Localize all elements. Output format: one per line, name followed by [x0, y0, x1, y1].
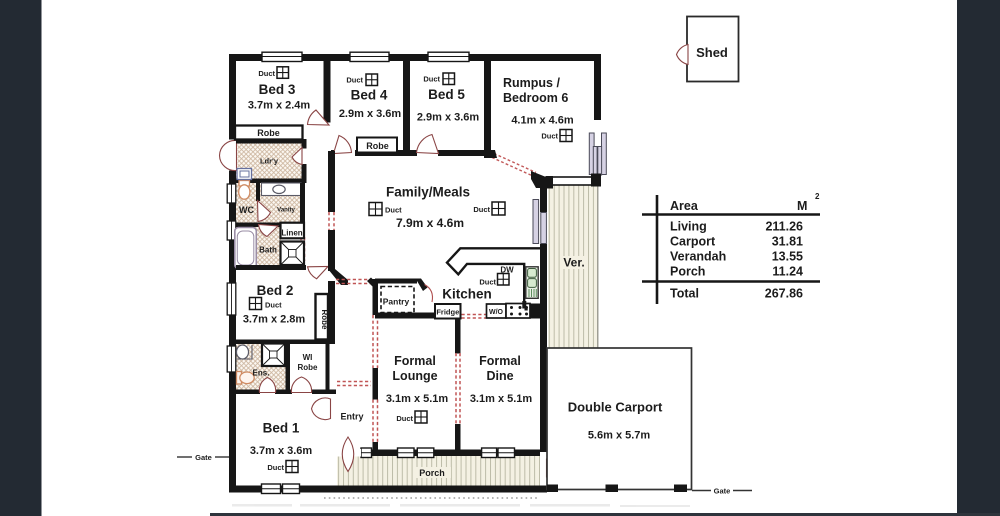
svg-text:Duct: Duct: [541, 132, 558, 141]
svg-text:2.9m x 3.6m: 2.9m x 3.6m: [339, 108, 402, 120]
svg-text:3.7m x 3.6m: 3.7m x 3.6m: [250, 445, 313, 457]
svg-text:2.9m x 3.6m: 2.9m x 3.6m: [417, 112, 480, 124]
svg-text:Shed: Shed: [696, 45, 728, 60]
svg-text:Vanity: Vanity: [277, 208, 295, 214]
svg-text:Gate: Gate: [195, 453, 212, 462]
svg-text:3.1m x 5.1m: 3.1m x 5.1m: [470, 393, 533, 405]
svg-text:Bed 5: Bed 5: [428, 87, 465, 102]
svg-text:Dine: Dine: [486, 369, 513, 383]
svg-text:2: 2: [815, 192, 820, 201]
svg-text:Formal: Formal: [479, 354, 521, 368]
svg-text:Ver.: Ver.: [563, 256, 584, 270]
svg-text:Bedroom 6: Bedroom 6: [503, 91, 568, 105]
svg-text:Area: Area: [670, 199, 699, 213]
svg-text:Duct: Duct: [479, 278, 496, 287]
svg-text:Bed 1: Bed 1: [263, 421, 300, 436]
svg-text:5.6m x 5.7m: 5.6m x 5.7m: [588, 430, 651, 442]
svg-text:Pantry: Pantry: [383, 297, 410, 307]
svg-text:211.26: 211.26: [765, 220, 803, 234]
svg-text:Bed 3: Bed 3: [259, 82, 296, 97]
svg-text:WI: WI: [303, 353, 313, 362]
svg-text:Living: Living: [670, 220, 707, 234]
svg-text:13.55: 13.55: [772, 250, 803, 264]
svg-text:Duct: Duct: [385, 206, 402, 215]
svg-text:3.7m x 2.8m: 3.7m x 2.8m: [243, 314, 306, 326]
svg-text:267.86: 267.86: [765, 287, 803, 301]
svg-text:Verandah: Verandah: [670, 250, 726, 264]
svg-text:Gate: Gate: [714, 487, 731, 496]
svg-text:Bath: Bath: [259, 246, 277, 255]
svg-text:Bed 4: Bed 4: [351, 88, 388, 103]
svg-text:Entry: Entry: [340, 412, 363, 422]
svg-text:Robe: Robe: [298, 363, 319, 372]
svg-text:Linen: Linen: [281, 229, 302, 238]
svg-text:Robe: Robe: [257, 128, 280, 138]
svg-text:7.9m x 4.6m: 7.9m x 4.6m: [396, 216, 464, 230]
svg-text:Robe: Robe: [366, 141, 389, 151]
svg-text:Fridge: Fridge: [436, 308, 459, 317]
svg-text:Duct: Duct: [423, 75, 440, 84]
svg-text:WC: WC: [239, 205, 254, 215]
svg-text:Duct: Duct: [346, 76, 363, 85]
svg-text:Duct: Duct: [258, 69, 275, 78]
svg-text:3.1m x 5.1m: 3.1m x 5.1m: [386, 393, 449, 405]
svg-text:Ens.: Ens.: [253, 369, 270, 378]
svg-text:Duct: Duct: [473, 205, 490, 214]
svg-text:Bed 2: Bed 2: [257, 283, 294, 298]
svg-text:Rumpus /: Rumpus /: [503, 76, 560, 90]
svg-text:31.81: 31.81: [772, 235, 803, 249]
svg-text:Duct: Duct: [267, 463, 284, 472]
svg-text:Kitchen: Kitchen: [442, 287, 492, 302]
svg-text:Robe: Robe: [320, 310, 329, 331]
svg-text:Total: Total: [670, 287, 699, 301]
svg-text:3.7m x 2.4m: 3.7m x 2.4m: [248, 100, 311, 112]
svg-text:Porch: Porch: [670, 265, 705, 279]
svg-text:Ldr'y: Ldr'y: [260, 157, 279, 166]
svg-text:Formal: Formal: [394, 354, 436, 368]
svg-text:W/O: W/O: [489, 309, 504, 316]
svg-text:4.1m x 4.6m: 4.1m x 4.6m: [511, 115, 574, 127]
svg-text:Double Carport: Double Carport: [568, 400, 663, 415]
svg-text:Carport: Carport: [670, 235, 716, 249]
svg-text:M: M: [797, 199, 807, 213]
svg-text:Porch: Porch: [419, 468, 445, 478]
svg-text:Lounge: Lounge: [392, 369, 437, 383]
svg-text:11.24: 11.24: [772, 265, 803, 279]
svg-text:Duct: Duct: [265, 301, 282, 310]
svg-text:Family/Meals: Family/Meals: [386, 185, 470, 200]
svg-text:Duct: Duct: [396, 414, 413, 423]
